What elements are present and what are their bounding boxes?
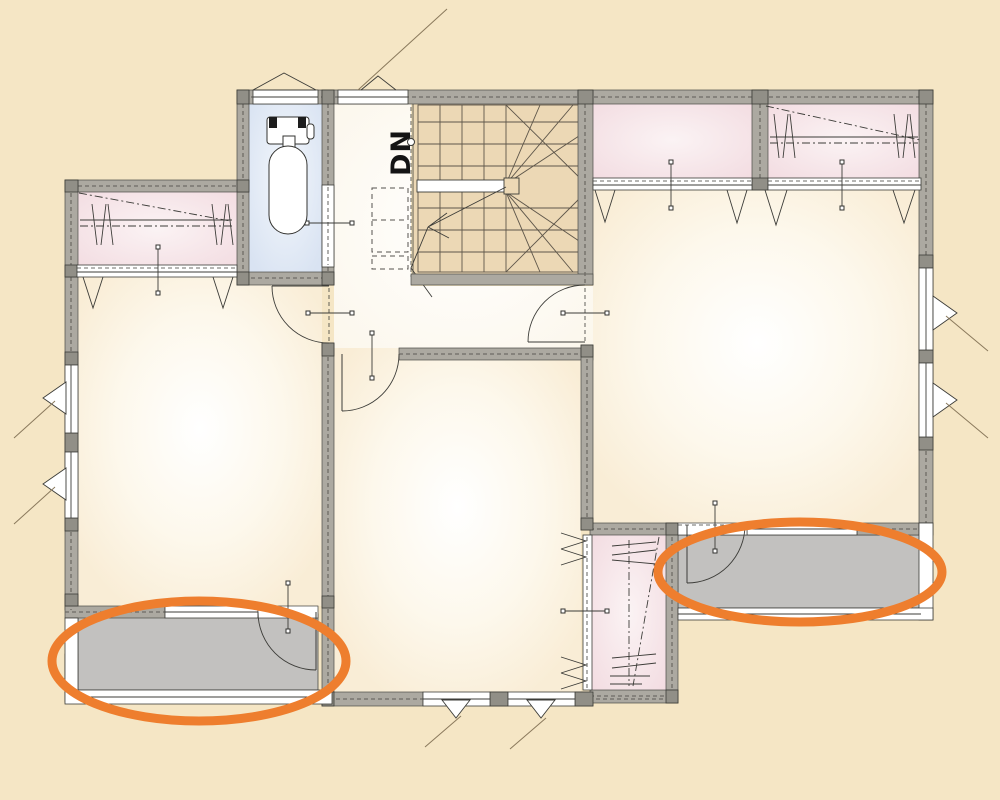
balcony-left-floor <box>78 614 318 690</box>
hall-window-swing <box>358 9 447 90</box>
toilet-tank-button-left <box>269 117 277 128</box>
left-window-swing-2 <box>14 468 66 524</box>
closet-tr1-opening <box>593 178 752 190</box>
window-toilet-top <box>253 90 318 104</box>
toilet-tank-button-right <box>298 117 306 128</box>
wall-stairs-bottom <box>411 274 593 285</box>
left-window-swing-1 <box>14 382 66 438</box>
stair-handrail <box>417 180 506 192</box>
sliding-door-toilet <box>322 185 334 267</box>
bottom-window-swing-2 <box>510 700 555 749</box>
stairs-down-label: DN <box>386 129 417 176</box>
floor-plan-canvas: DN <box>0 0 1000 800</box>
balcony-right-floor <box>678 535 921 608</box>
right-window-swing-1 <box>933 296 988 351</box>
window-left-2 <box>65 452 78 518</box>
closet-top-right-2 <box>768 102 921 178</box>
toilet-fixture <box>267 117 314 234</box>
closet-top-right-1 <box>593 102 752 178</box>
closet-top-left <box>77 190 237 267</box>
room-bedroom-left <box>78 277 322 606</box>
room-bedroom-middle <box>334 348 581 692</box>
window-left-1 <box>65 365 78 433</box>
stair-newel-post <box>504 178 519 194</box>
closet-bottom-front <box>583 535 592 690</box>
room-bedroom-right <box>593 190 921 523</box>
right-window-swing-2 <box>933 383 988 438</box>
toilet-window-swing <box>253 73 316 90</box>
window-right-1 <box>919 268 933 350</box>
dn-text: DN <box>386 129 417 176</box>
toilet-bowl <box>269 146 307 234</box>
toilet-spout <box>307 124 314 139</box>
closet-tl-opening <box>77 265 237 277</box>
closet-tr2-opening <box>768 178 921 190</box>
floor-plan-page: DN <box>0 0 1000 800</box>
window-right-2 <box>919 363 933 437</box>
wall-divider-left-middle <box>322 343 334 705</box>
bottom-window-swing-1 <box>425 700 470 747</box>
window-hall-top <box>338 90 408 104</box>
